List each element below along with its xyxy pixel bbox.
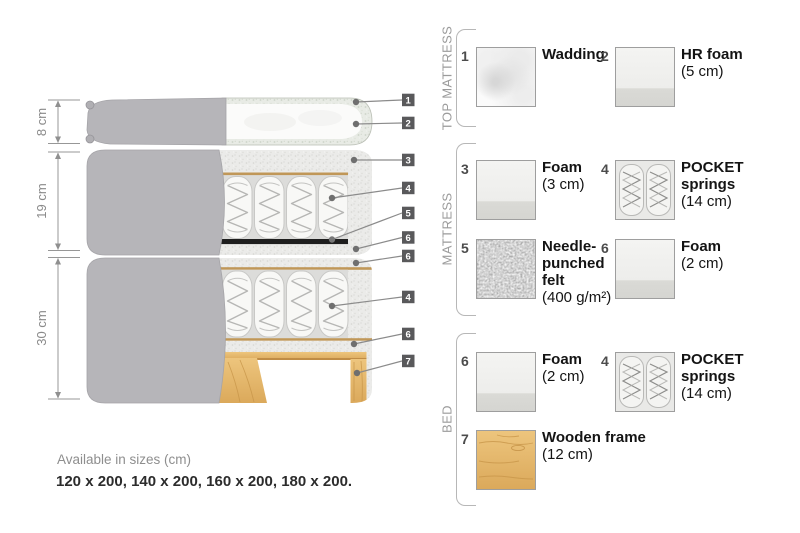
swatch-foam — [476, 160, 536, 220]
svg-text:6: 6 — [406, 330, 411, 341]
available-sizes-values: 120 x 200, 140 x 200, 160 x 200, 180 x 2… — [56, 473, 352, 490]
swatch-felt — [476, 239, 536, 299]
svg-text:6: 6 — [406, 233, 411, 244]
legend-item-label: POCKET springs (14 cm) — [681, 159, 763, 210]
legend-item-label: POCKET springs (14 cm) — [681, 351, 763, 402]
legend-item-number: 4 — [601, 161, 609, 177]
dimension-30cm: 30 cm — [34, 258, 80, 400]
svg-text:4: 4 — [406, 184, 412, 195]
fabric-cover — [87, 150, 225, 255]
section-label-top-mattress: TOP MATTRESS — [440, 26, 455, 130]
dimension-8cm: 8 cm — [34, 100, 80, 144]
legend-item-number: 2 — [601, 48, 609, 64]
dimension-19cm: 19 cm — [34, 152, 80, 251]
swatch-pocket-springs — [615, 160, 675, 220]
svg-text:2: 2 — [406, 119, 411, 130]
swatch-foam — [615, 239, 675, 299]
legend-item-label: Wooden frame (12 cm) — [542, 429, 702, 463]
legend-item-label: Foam (2 cm) — [681, 238, 763, 272]
svg-text:6: 6 — [406, 252, 411, 263]
legend-item-number: 1 — [461, 48, 469, 64]
legend-item-label: Foam (3 cm) — [542, 159, 624, 193]
section-bracket-top-mattress — [456, 29, 476, 127]
swatch-foam — [476, 352, 536, 412]
fabric-cover — [87, 98, 226, 145]
svg-text:3: 3 — [406, 156, 411, 167]
swatch-wood — [476, 430, 536, 490]
svg-text:1: 1 — [406, 96, 412, 107]
bed-section — [87, 258, 372, 403]
dimension-label: 19 cm — [34, 183, 49, 218]
dimension-label: 30 cm — [34, 310, 49, 345]
section-label-mattress: MATTRESS — [440, 192, 455, 265]
legend-item-label: Foam (2 cm) — [542, 351, 624, 385]
legend-item-label: Needle-punched felt (400 g/m²) — [542, 238, 624, 306]
svg-text:5: 5 — [406, 209, 412, 220]
swatch-pocket-springs — [615, 352, 675, 412]
legend-item-number: 6 — [461, 353, 469, 369]
legend-item-label: HR foam (5 cm) — [681, 46, 763, 80]
dimension-label: 8 cm — [34, 108, 49, 136]
svg-text:4: 4 — [406, 293, 412, 304]
legend-item-number: 5 — [461, 240, 469, 256]
legend-item-number: 7 — [461, 431, 469, 447]
section-label-bed: BED — [440, 405, 455, 433]
legend-item-number: 3 — [461, 161, 469, 177]
bed-construction-diagram: 8 cm 19 cm 30 cm — [0, 0, 800, 533]
legend-item-number: 6 — [601, 240, 609, 256]
legend-item-label: Wadding — [542, 46, 624, 63]
top-mattress-section — [86, 98, 372, 145]
legend-item-number: 4 — [601, 353, 609, 369]
available-sizes-title: Available in sizes (cm) — [57, 452, 191, 467]
swatch-wadding — [476, 47, 536, 107]
fabric-cover — [87, 258, 226, 403]
swatch-foam — [615, 47, 675, 107]
svg-text:7: 7 — [406, 357, 411, 368]
